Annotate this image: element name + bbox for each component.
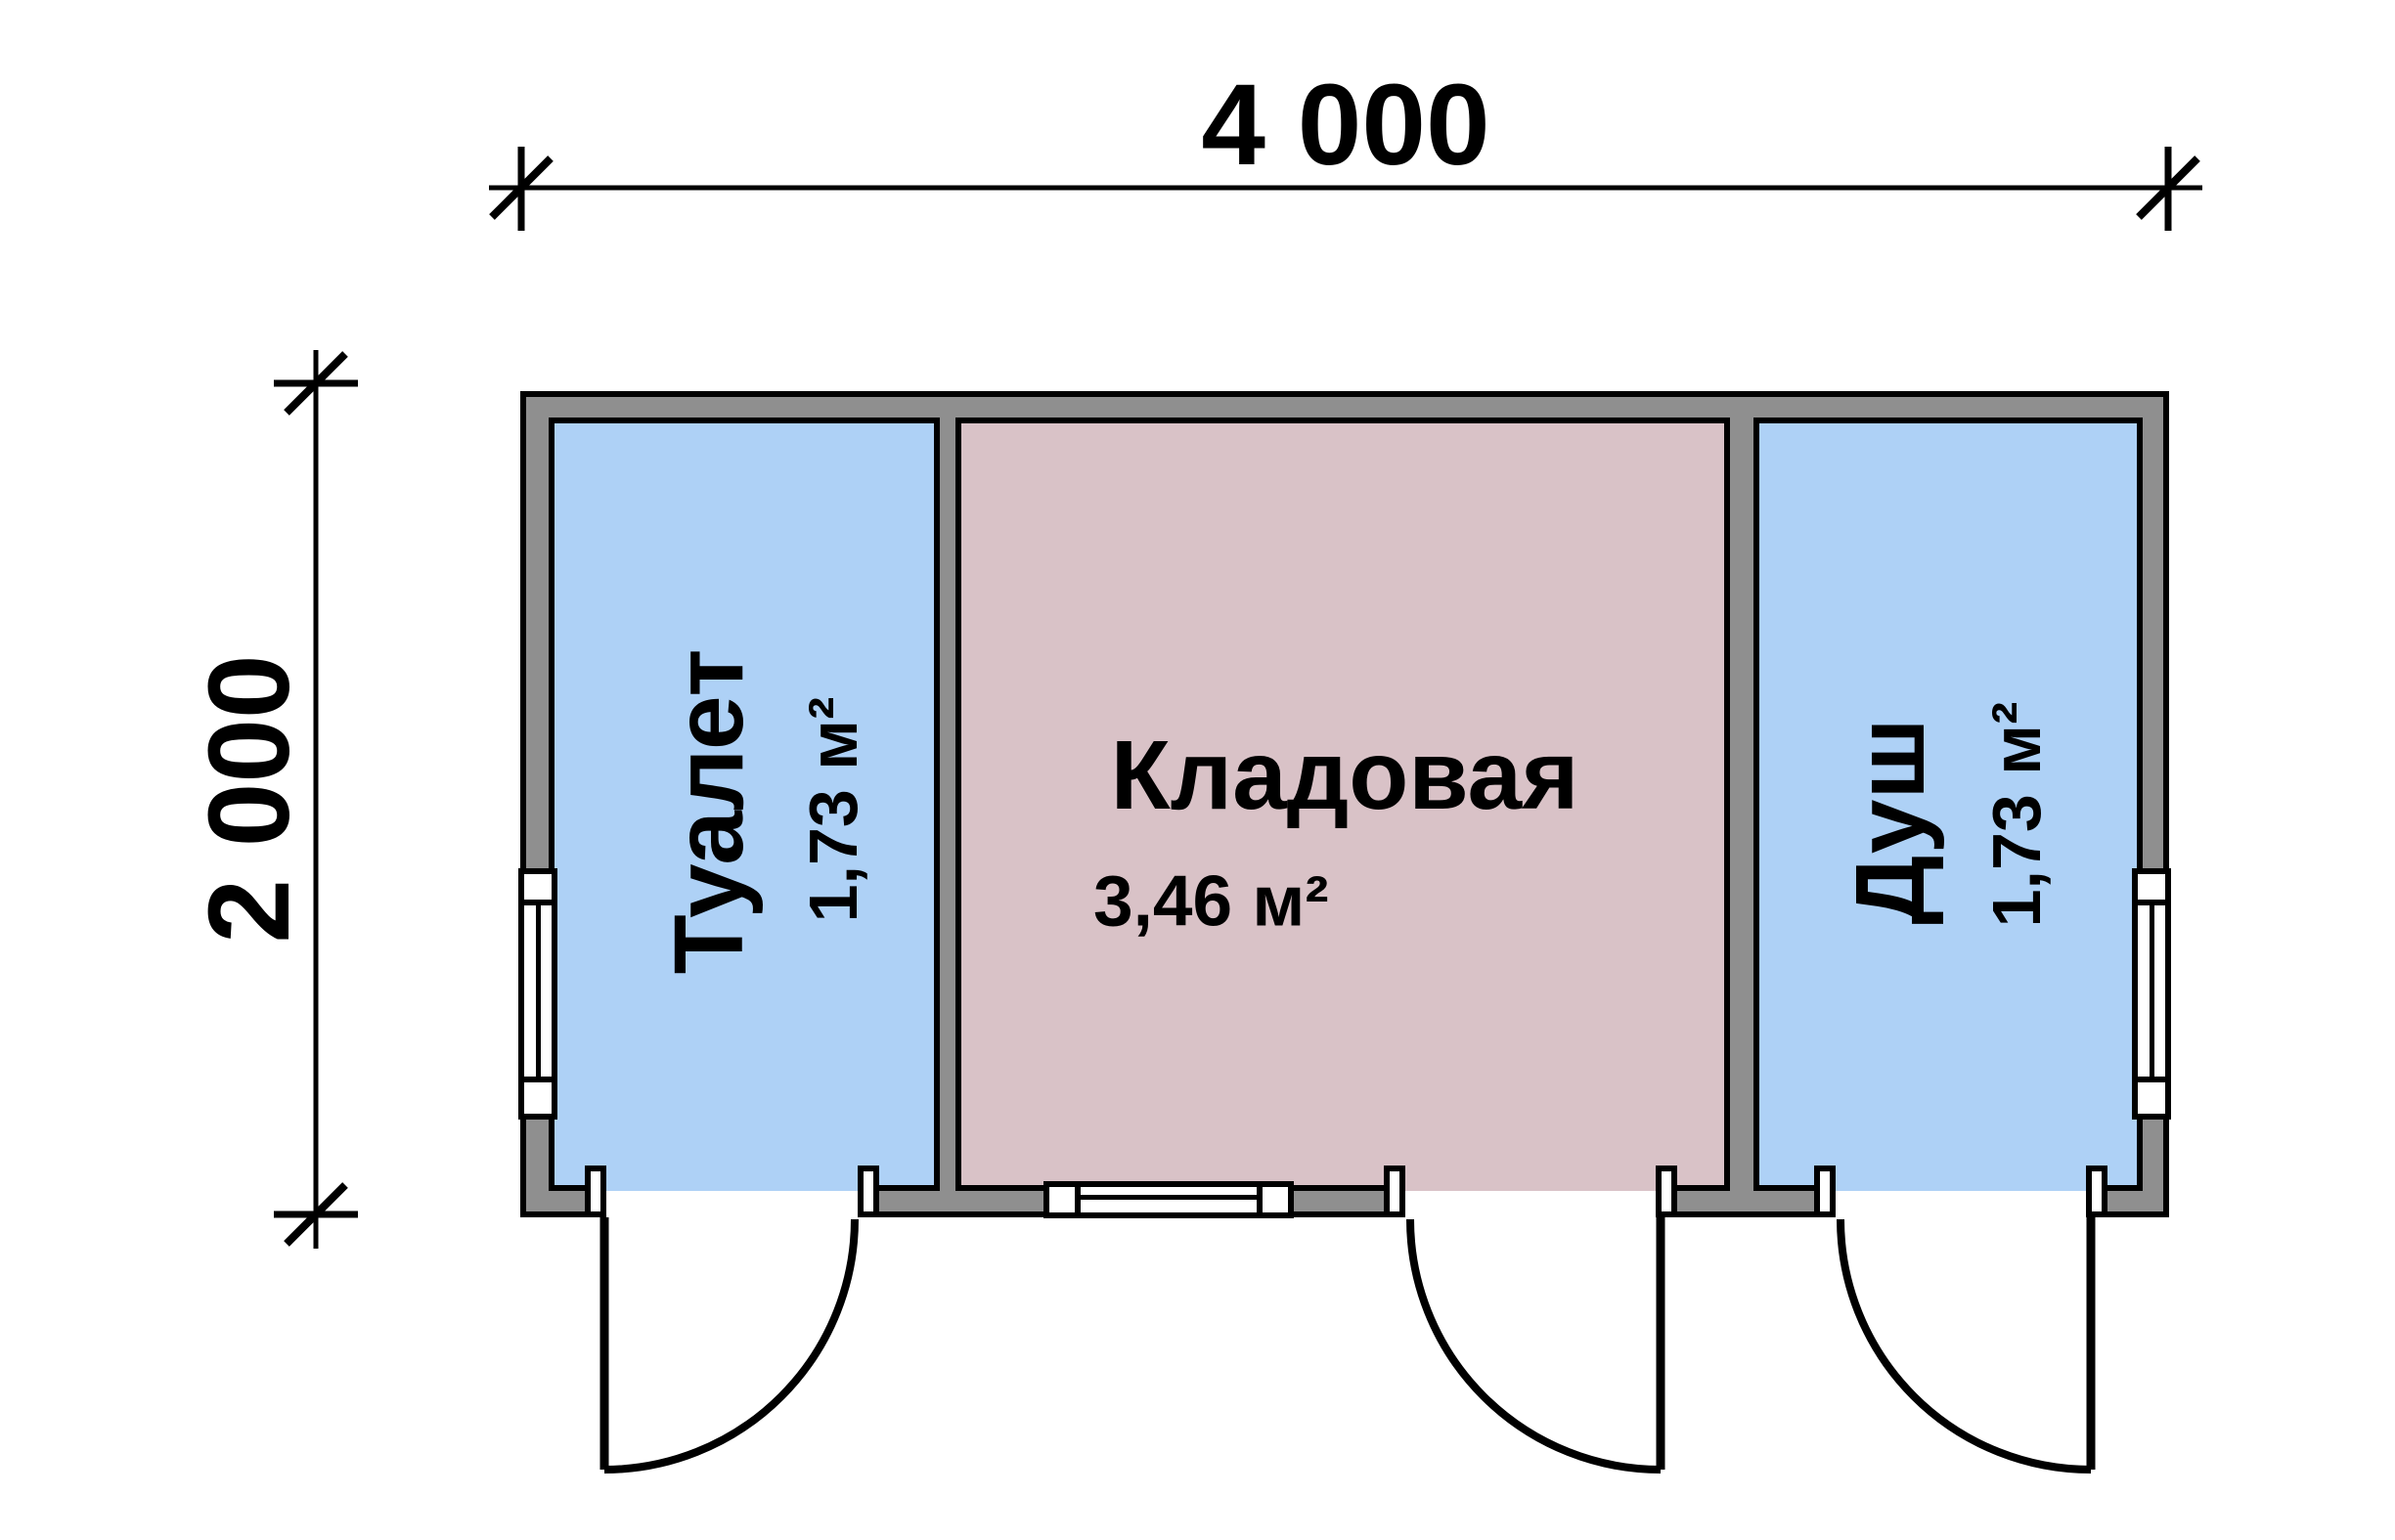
room-shower-label: Душ bbox=[1841, 718, 1939, 924]
room-shower-area: 1,73 м² bbox=[1982, 702, 2051, 928]
dimension-height-label: 2 000 bbox=[192, 654, 307, 943]
room-storage-area: 3,46 м² bbox=[1093, 866, 1329, 938]
room-storage-label: Кладовая bbox=[1111, 726, 1579, 824]
door-shower bbox=[1841, 1217, 2091, 1470]
door-toilet bbox=[604, 1217, 855, 1470]
dimension-width-label: 4 000 bbox=[1201, 67, 1489, 183]
door-storage bbox=[1410, 1217, 1661, 1470]
room-toilet-area: 1,73 м² bbox=[799, 697, 867, 923]
floor-plan-canvas: 4 000 2 000 Туалет 1,73 м² Кладовая 3,46… bbox=[0, 0, 2395, 1540]
room-toilet-label: Туалет bbox=[660, 649, 758, 975]
